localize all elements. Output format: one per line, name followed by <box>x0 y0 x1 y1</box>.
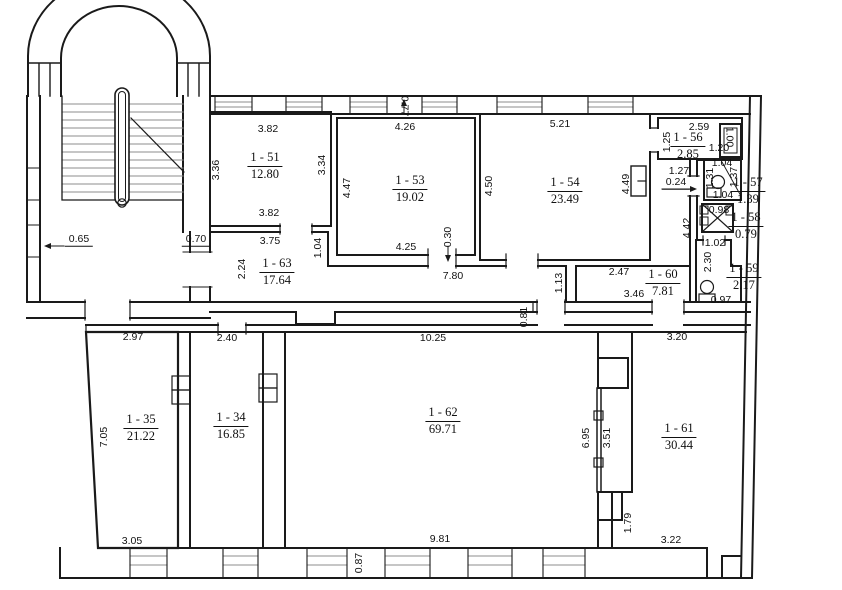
room-stamp-1-35: 1 - 3521.22 <box>123 413 158 443</box>
dim-label: 3.75 <box>260 236 280 247</box>
floor-plan-canvas: 0.650.703.823.363.343.823.752.241.044.26… <box>0 0 842 590</box>
room-area: 12.80 <box>247 167 282 182</box>
room-number: 1 - 56 <box>670 131 705 147</box>
room-number: 1 - 51 <box>247 151 282 167</box>
room-number: 1 - 62 <box>425 406 460 422</box>
room-stamp-1-61: 1 - 6130.44 <box>661 422 696 452</box>
dim-label: 3.82 <box>258 124 278 135</box>
dim-label: 4.25 <box>396 242 416 253</box>
dim-label: 3.20 <box>667 332 687 343</box>
dim-label: 1.13 <box>554 273 565 293</box>
dim-label: 3.82 <box>259 208 279 219</box>
room-stamp-1-56: 1 - 562.85 <box>670 131 705 161</box>
room-area: 30.44 <box>661 438 696 453</box>
dim-label: 3.22 <box>661 535 681 546</box>
dim-label: 3.46 <box>624 289 644 300</box>
room-area: 16.85 <box>213 427 248 442</box>
dim-label: 5.21 <box>550 119 570 130</box>
room-number: 1 - 58 <box>728 211 763 227</box>
room-area: 2.85 <box>670 147 705 162</box>
room-number: 1 - 63 <box>259 257 294 273</box>
dim-label: 0.81 <box>519 307 530 327</box>
dim-label: 2.97 <box>123 332 143 343</box>
room-area: 21.22 <box>123 429 158 444</box>
room-area: 17.64 <box>259 273 294 288</box>
room-stamp-1-58: 1 - 580.79 <box>728 211 763 241</box>
room-area: 0.79 <box>728 227 763 242</box>
dim-label: 2.40 <box>217 333 237 344</box>
room-number: 1 - 34 <box>213 411 248 427</box>
dim-label: 1.04 <box>313 238 324 258</box>
dim-label: 1.79 <box>623 513 634 533</box>
dim-label: 0.30 <box>443 227 454 247</box>
room-number: 1 - 54 <box>547 176 582 192</box>
room-stamp-1-63: 1 - 6317.64 <box>259 257 294 287</box>
dim-label: 0.77 <box>399 96 410 116</box>
dim-label: 3.51 <box>602 428 613 448</box>
room-number: 1 - 53 <box>392 174 427 190</box>
room-stamp-1-60: 1 - 607.81 <box>645 268 680 298</box>
dim-label: 0.98 <box>709 205 729 216</box>
dim-label: 3.05 <box>122 536 142 547</box>
room-number: 1 - 59 <box>726 262 761 278</box>
room-stamp-1-51: 1 - 5112.80 <box>247 151 282 181</box>
dim-label: 2.24 <box>237 259 248 279</box>
room-stamp-1-57: 1 - 571.39 <box>730 176 765 206</box>
room-area: 23.49 <box>547 192 582 207</box>
dim-label: 2.47 <box>609 267 629 278</box>
dim-label: 4.47 <box>342 178 353 198</box>
room-stamp-1-34: 1 - 3416.85 <box>213 411 248 441</box>
dim-label: 3.34 <box>317 155 328 175</box>
room-number: 1 - 61 <box>661 422 696 438</box>
dim-label: 1.31 <box>705 168 716 188</box>
room-stamp-1-62: 1 - 6269.71 <box>425 406 460 436</box>
room-number: 1 - 60 <box>645 268 680 284</box>
dim-label: 10.25 <box>420 333 446 344</box>
dim-label: 0.70 <box>182 234 210 247</box>
dim-label: 1.20 <box>709 143 729 154</box>
dim-label: 1.27 <box>669 166 689 177</box>
dim-label: 7.05 <box>99 427 110 447</box>
dim-label: 4.42 <box>682 218 693 238</box>
dim-label: 0.65 <box>65 234 93 247</box>
room-area: 2.17 <box>726 278 761 293</box>
labels-layer: 0.650.703.823.363.343.823.752.241.044.26… <box>0 0 842 590</box>
dim-label: 4.26 <box>395 122 415 133</box>
room-stamp-1-53: 1 - 5319.02 <box>392 174 427 204</box>
dim-label: 0.87 <box>354 553 365 573</box>
dim-label: 4.50 <box>484 176 495 196</box>
room-area: 69.71 <box>425 422 460 437</box>
dim-label: 3.36 <box>211 160 222 180</box>
dim-label: 6.95 <box>581 428 592 448</box>
room-stamp-1-59: 1 - 592.17 <box>726 262 761 292</box>
dim-label: 9.81 <box>430 534 450 545</box>
room-number: 1 - 35 <box>123 413 158 429</box>
dim-label: 0.97 <box>711 295 731 306</box>
room-stamp-1-54: 1 - 5423.49 <box>547 176 582 206</box>
dim-label: 2.30 <box>703 252 714 272</box>
room-area: 7.81 <box>645 284 680 299</box>
dim-label: 0.24 <box>662 177 690 190</box>
dim-label: 4.49 <box>621 174 632 194</box>
dim-label: 7.80 <box>443 271 463 282</box>
room-number: 1 - 57 <box>730 176 765 192</box>
dim-label: 1.02 <box>705 238 725 249</box>
room-area: 1.39 <box>730 192 765 207</box>
room-area: 19.02 <box>392 190 427 205</box>
